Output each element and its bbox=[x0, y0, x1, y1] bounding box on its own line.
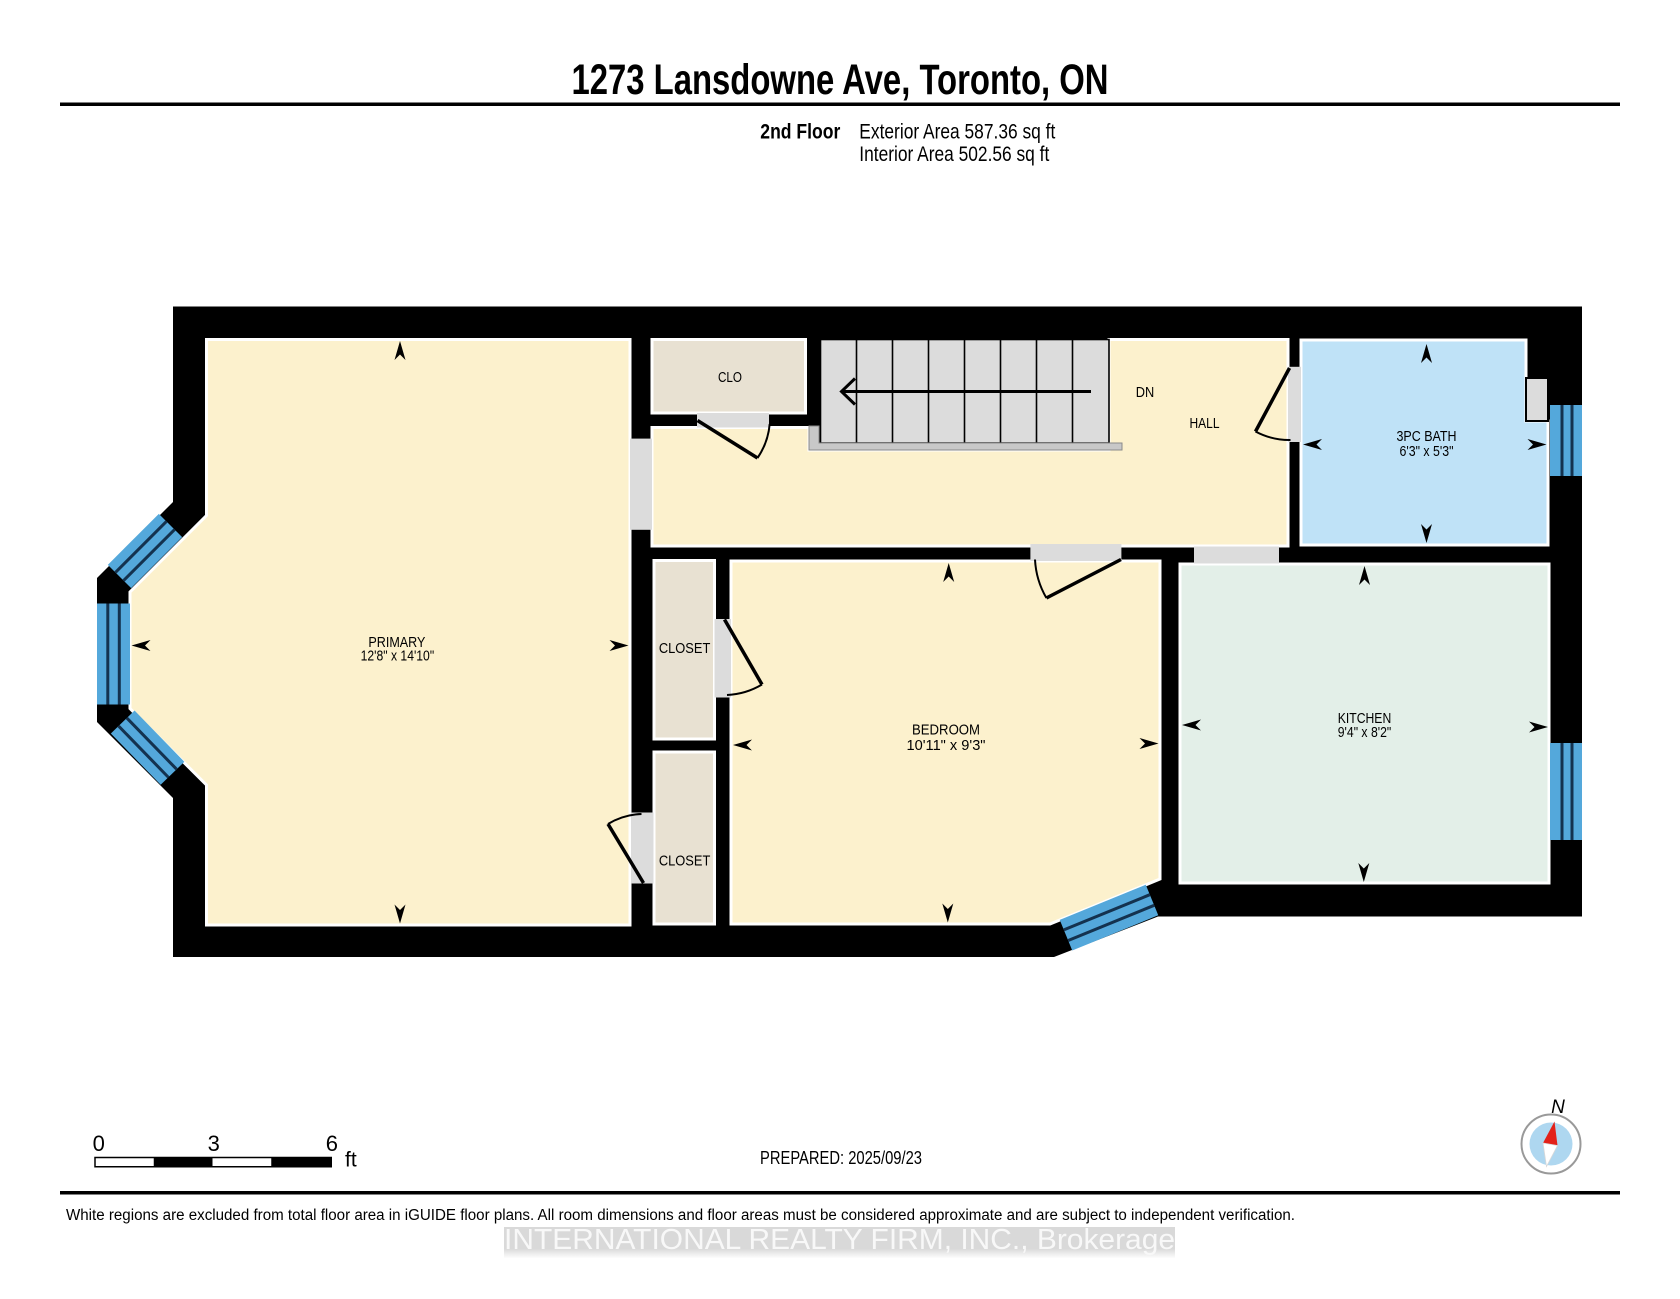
svg-text:2nd Floor: 2nd Floor bbox=[760, 121, 840, 144]
svg-text:CLOSET: CLOSET bbox=[659, 853, 711, 869]
svg-text:10'11" x 9'3": 10'11" x 9'3" bbox=[907, 738, 986, 754]
svg-text:12'8" x 14'10": 12'8" x 14'10" bbox=[361, 648, 435, 664]
svg-text:HALL: HALL bbox=[1190, 416, 1220, 432]
svg-text:ft: ft bbox=[345, 1149, 357, 1172]
svg-text:6'3" x 5'3": 6'3" x 5'3" bbox=[1400, 444, 1454, 460]
svg-text:0: 0 bbox=[93, 1131, 105, 1156]
svg-text:1273 Lansdowne Ave, Toronto, O: 1273 Lansdowne Ave, Toronto, ON bbox=[572, 56, 1109, 104]
svg-text:9'4" x 8'2": 9'4" x 8'2" bbox=[1338, 725, 1392, 741]
svg-text:Interior Area 502.56 sq ft: Interior Area 502.56 sq ft bbox=[859, 143, 1049, 166]
svg-text:CLO: CLO bbox=[718, 370, 742, 386]
svg-text:DN: DN bbox=[1136, 385, 1155, 401]
svg-text:INTERNATIONAL REALTY FIRM, INC: INTERNATIONAL REALTY FIRM, INC., Brokera… bbox=[504, 1224, 1175, 1256]
svg-text:BEDROOM: BEDROOM bbox=[912, 722, 980, 738]
svg-text:3PC BATH: 3PC BATH bbox=[1397, 429, 1457, 445]
svg-text:N: N bbox=[1551, 1097, 1565, 1118]
svg-text:3: 3 bbox=[208, 1131, 220, 1156]
svg-text:White regions are excluded fro: White regions are excluded from total fl… bbox=[66, 1207, 1295, 1224]
svg-text:PREPARED: 2025/09/23: PREPARED: 2025/09/23 bbox=[760, 1147, 922, 1168]
svg-text:CLOSET: CLOSET bbox=[659, 641, 711, 657]
svg-text:6: 6 bbox=[326, 1131, 338, 1156]
svg-text:Exterior Area 587.36 sq ft: Exterior Area 587.36 sq ft bbox=[859, 121, 1055, 144]
